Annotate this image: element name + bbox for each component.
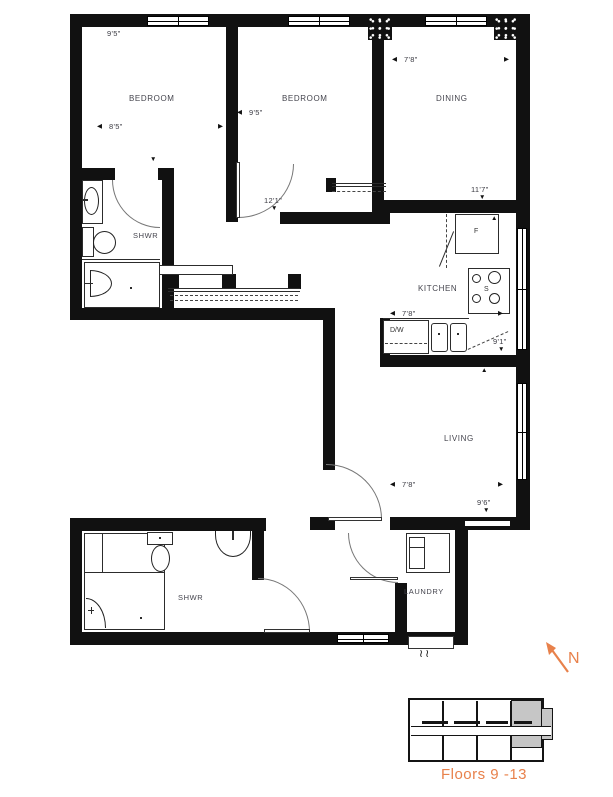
dim-living-v: 9'6" [477,498,491,507]
door-arc-bath1 [112,180,160,228]
room-label-laundry: LAUNDRY [404,587,444,596]
wall-bedroom2-dining [372,14,384,214]
dim-dining-h: 7'8" [404,55,418,64]
wall-bedroom2-bottom [280,212,390,224]
room-label-shwr1: SHWR [133,231,158,240]
drain-dot [140,617,142,619]
dim-dining-v: 11'7" [471,185,489,194]
window-icon [337,634,389,643]
sink-basin [431,323,448,352]
toilet-icon [151,545,170,572]
toilet-icon [93,231,116,254]
washer-line [409,547,425,548]
dim-arrow-up-icon: ▲ [268,21,274,28]
north-label: N [568,650,580,668]
room-label-dining: DINING [436,94,468,103]
door-arc-living [326,464,382,519]
burner-icon [472,274,481,283]
closet-track [168,291,300,292]
wall-closet-stub [326,178,336,192]
wall-corridor-bottom [70,308,335,320]
dim-arrow-up-icon: ▲ [116,19,122,26]
closet-track [332,183,386,184]
dim-arrow-right-icon: ▶ [504,57,509,64]
keyplan-divider [442,736,444,760]
shower-divider [102,533,103,572]
door-leaf [328,517,382,521]
flush-dot [159,537,161,539]
door-leaf [236,162,240,218]
dim-bed1-h: 8'5" [109,122,123,131]
room-label-kitchen: KITCHEN [418,284,457,293]
wall-kitchen-bottom [383,355,516,367]
wall-shwr2-top [70,518,266,531]
column [368,16,392,40]
wall-left-upper [70,14,82,320]
counter-edge [383,318,469,319]
keyplan-inner-wall [514,721,532,724]
wall-dining-kitchen [384,200,516,213]
dim-bed2-h: 9'5" [249,108,263,117]
wall-bedroom1-bottom [70,168,115,180]
window-icon [147,16,209,26]
stove-label: S [484,286,489,293]
dim-kitchen-v: 9'1" [493,337,507,346]
dim-arrow-down-icon: ▼ [483,508,489,515]
door-leaf [264,629,310,633]
floors-label: Floors 9 -13 [408,766,560,783]
dim-arrow-left-icon: ◀ [390,311,395,318]
wall-shwr2-right [252,518,264,580]
sink-basin [450,323,467,352]
closet-slider [170,300,298,301]
room-label-living: LIVING [444,434,474,443]
door-arc-shwr2 [258,578,310,632]
dim-arrow-left-icon: ◀ [392,57,397,64]
sink-icon [84,187,99,215]
washer-door [409,537,425,569]
shower-lever [85,283,93,284]
dishwasher [383,320,429,354]
door-leaf [350,577,398,580]
burner-icon [489,293,500,304]
dim-arrow-right-icon: ▶ [218,124,223,131]
burner-icon [488,271,501,284]
closet-track [168,288,300,289]
keyplan-inner-wall [454,721,480,724]
closet-track [332,186,386,187]
closet-post [222,274,236,289]
window-icon [288,16,350,26]
room-label-bedroom2: BEDROOM [282,94,328,103]
keyplan-divider [510,736,512,760]
floor-plan: ≀≀ F S D/W BEDROOM [0,0,613,797]
dim-kitchen-h: 7'8" [402,309,416,318]
dim-arrow-up-icon: ▲ [481,368,487,375]
drain-dot [130,287,132,289]
wall-mid-vertical [323,308,335,470]
window-icon [517,228,527,350]
entry-squiggle-icon: ≀≀ [419,647,431,660]
wall-laundry-right [455,517,468,645]
fridge-label: F [474,228,478,235]
dim-arrow-down-icon: ▼ [479,195,485,202]
dishwasher-line [385,343,427,344]
dim-bed2-v: 12'1" [264,196,282,205]
column [494,16,518,40]
room-label-shwr2: SHWR [178,593,203,602]
faucet-icon [82,199,88,201]
dim-arrow-right-icon: ▶ [498,482,503,489]
closet-post [288,274,301,289]
dim-arrow-left-icon: ◀ [237,110,242,117]
dim-arrow-right-icon: ▶ [498,311,503,318]
closet-post [165,274,179,289]
dim-arrow-left-icon: ◀ [97,124,102,131]
window-icon [517,383,527,480]
door-arc-laundry [348,533,398,583]
dim-arrow-down-icon: ▼ [498,347,504,354]
keyplan-highlight-unit [511,700,542,748]
dim-bed1-v: 9'5" [107,29,121,38]
faucet-icon [91,607,92,614]
keyplan-divider [510,701,512,726]
keyplan [408,698,560,764]
dim-arrow-down-icon: ▼ [150,157,156,164]
closet-slider [170,295,298,296]
cabinet-dashed [446,214,447,268]
keyplan-inner-wall [486,721,508,724]
burner-icon [472,294,481,303]
keyplan-corridor [411,726,551,736]
keyplan-inner-wall [422,721,448,724]
dishwasher-label: D/W [390,327,404,334]
door-arc-bedroom2 [238,164,294,218]
closet-slider [332,191,386,192]
faucet-icon [457,333,459,335]
window-icon [425,16,487,26]
faucet-icon [232,531,234,540]
dim-arrow-left-icon: ◀ [390,482,395,489]
faucet-icon [438,333,440,335]
dim-living-h: 7'8" [402,480,416,489]
wall-left-lower [70,518,82,645]
dim-arrow-up-icon: ▲ [491,216,497,223]
room-label-bedroom1: BEDROOM [129,94,175,103]
wall-step-slot [465,521,510,526]
shower-divider [84,572,165,573]
keyplan-divider [476,736,478,760]
dim-arrow-down-icon: ▼ [271,206,277,213]
bath1-divider [82,259,160,260]
